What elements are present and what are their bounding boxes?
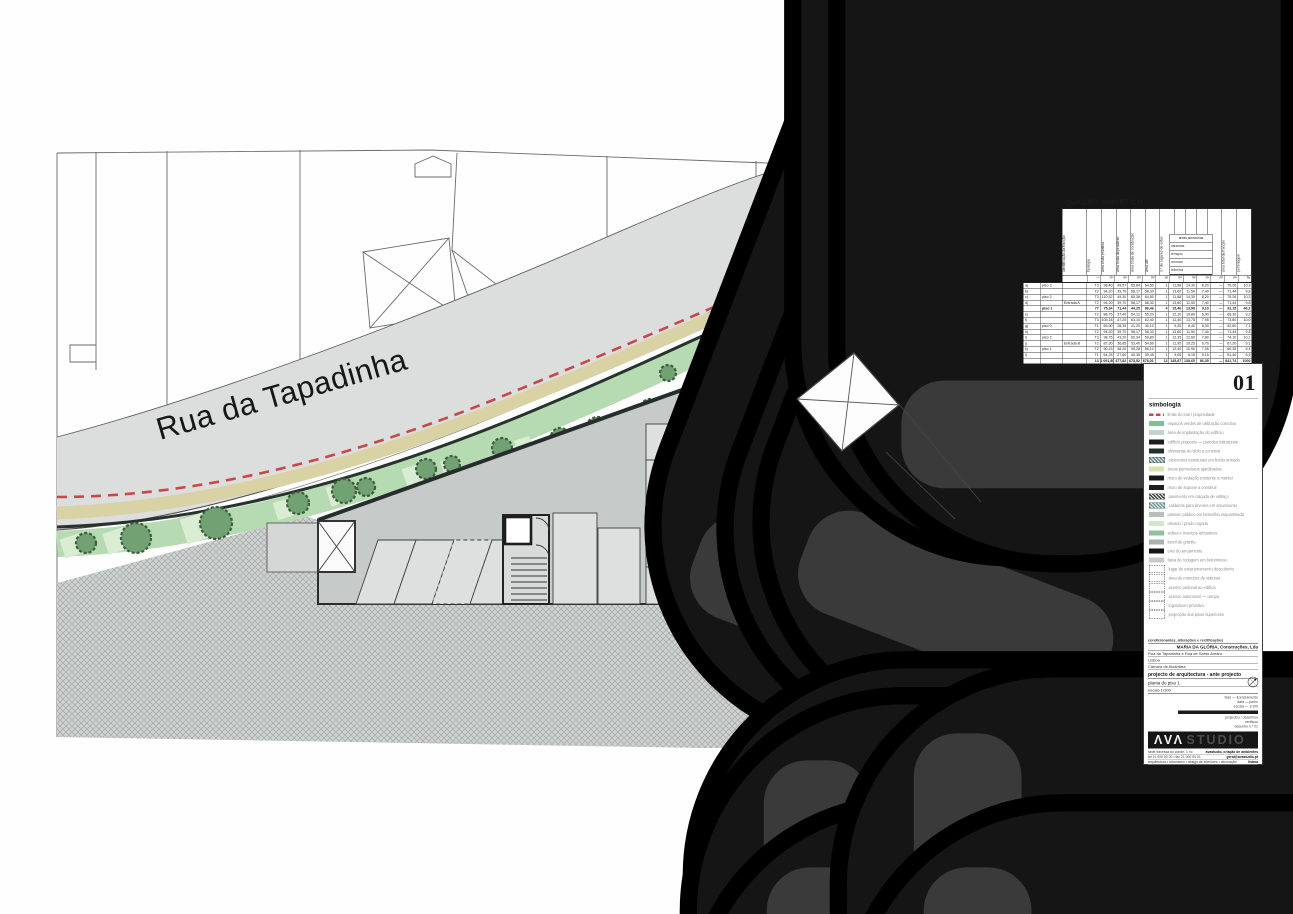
value-cell: 11,50 <box>1183 329 1197 334</box>
legend-item: sebes e maciços arbustivos <box>1149 528 1259 537</box>
fraction-cell: a) <box>1024 283 1041 288</box>
legend-title: simbologia <box>1149 401 1181 408</box>
synoptic-group-sub: arrumos <box>1170 259 1212 267</box>
value-cell: 1 <box>1155 312 1169 317</box>
synoptic-col-header: área bruta privativa <box>1102 209 1117 275</box>
value-cell: T2 <box>1087 329 1101 334</box>
synoptic-col-header: tipologia <box>1087 209 1102 275</box>
value-cell: 94,20 <box>1100 329 1114 334</box>
legend-swatch <box>1149 539 1164 544</box>
value-cell: 1 <box>1155 318 1169 323</box>
entrance-cell: Entrada A <box>1063 300 1087 305</box>
value-cell: 8,20 <box>1197 295 1211 300</box>
value-cell: 1 <box>1155 283 1169 288</box>
contact-text: geral@avastudio.pt <box>1227 756 1258 760</box>
legend-swatch <box>1149 521 1164 526</box>
value-cell: 13,98 <box>1183 306 1197 311</box>
legend-swatch <box>1149 502 1165 508</box>
floor-cell <box>1041 289 1063 294</box>
value-cell: 1 <box>1155 341 1169 346</box>
value-cell: 58,30 <box>1142 289 1156 294</box>
value-cell: 75,26 <box>1224 295 1238 300</box>
value-cell: 56,10 <box>1142 347 1156 352</box>
legend-item: lancil de granito <box>1149 537 1259 546</box>
floor-cell <box>1041 329 1063 334</box>
value-cell: — <box>1210 329 1224 334</box>
value-cell: 1 <box>1155 300 1169 305</box>
value-cell: 13,75 <box>1183 318 1197 323</box>
synoptic-units-row: —m²m²m²m²unm²m²m²m²m²‰ <box>1062 275 1252 283</box>
value-cell: 27,60 <box>1114 352 1128 357</box>
value-cell: 65,84 <box>1128 283 1142 288</box>
value-cell: 43,20 <box>1114 335 1128 340</box>
entrance-cell <box>1063 358 1087 363</box>
value-cell: 65,38 <box>1128 295 1142 300</box>
value-cell: 44,25 <box>1128 306 1142 311</box>
project-title: projecto de arquitectura - ante projecto <box>1148 670 1258 679</box>
floor-cell: piso 2 <box>1041 335 1063 340</box>
value-cell: — <box>1210 352 1224 357</box>
synoptic-group-sub: telheiros <box>1170 267 1212 275</box>
value-cell: 1 <box>1155 289 1169 294</box>
value-cell: 54,12 <box>1128 312 1142 317</box>
legend-label: faixa de rodagem em betuminoso <box>1168 558 1228 563</box>
floor-cell: piso 1 <box>1041 347 1063 352</box>
value-cell: 58,17 <box>1128 289 1142 294</box>
floor-cell: piso 3 <box>1041 283 1063 288</box>
value-cell: 58,30 <box>1142 300 1156 305</box>
legend-swatch <box>1149 602 1165 610</box>
legend-label: áreas permeáveis ajardinadas <box>1168 467 1222 472</box>
contact-text: avastudio, criação de ambientes <box>1206 751 1258 755</box>
floor-cell <box>1041 312 1063 317</box>
fraction-cell: b) <box>1024 289 1041 294</box>
value-cell: 67,20 <box>1224 341 1238 346</box>
value-cell: 88,75 <box>1100 312 1114 317</box>
value-cell: 8,40 <box>1183 324 1197 329</box>
value-cell: 71,44 <box>1224 289 1238 294</box>
legend-swatch <box>1149 565 1165 573</box>
legend-item: logradouro privativo <box>1149 601 1259 610</box>
value-cell: 41,20 <box>1128 324 1142 329</box>
value-cell: 10,80 <box>1183 312 1197 317</box>
value-cell: 39,70 <box>1114 329 1128 334</box>
fraction-cell: l) <box>1024 352 1041 357</box>
legend-swatch <box>1149 583 1165 591</box>
north-arrow-icon <box>1246 675 1260 689</box>
value-cell: 11,50 <box>1183 300 1197 305</box>
value-cell: 6,70 <box>1197 341 1211 346</box>
entrance-cell <box>1063 352 1087 357</box>
legend-item: relvado / prado regado <box>1149 519 1259 528</box>
fraction-cell: g) <box>1024 324 1041 329</box>
value-cell: 7,80 <box>1197 335 1211 340</box>
synoptic-unit: ‰ <box>1238 276 1251 283</box>
synoptic-col-header: área total da fracção <box>1222 209 1237 275</box>
fraction-cell: i) <box>1024 335 1041 340</box>
value-cell: 71,44 <box>1224 300 1238 305</box>
value-cell: 63,10 <box>1128 318 1142 323</box>
value-cell: 64,50 <box>1142 295 1156 300</box>
legend-swatch <box>1149 467 1164 472</box>
legend-swatch <box>1149 493 1165 499</box>
value-cell: 37,40 <box>1114 312 1128 317</box>
legend-swatch <box>1149 421 1164 426</box>
value-cell: 10,3 <box>1238 283 1252 288</box>
value-cell: 71,44 <box>1224 329 1238 334</box>
value-cell: 13,60 <box>1169 300 1183 305</box>
value-cell: 5,30 <box>1197 324 1211 329</box>
value-cell: 1 <box>1155 352 1169 357</box>
synoptic-unit: m² <box>1183 276 1197 283</box>
legend-label: caldeiras para árvores em arruamento <box>1169 503 1237 508</box>
floor-cell: piso 1 <box>1041 306 1063 311</box>
synoptic-col-header: área bruta dependente <box>1116 209 1131 275</box>
legend-item: área de manobra de viaturas <box>1149 574 1259 583</box>
synoptic-unit: m² <box>1211 276 1225 283</box>
value-cell: 1 <box>1155 347 1169 352</box>
legend-swatch <box>1149 448 1164 453</box>
fraction-cell: k) <box>1024 347 1041 352</box>
entrance-cell <box>1063 312 1087 317</box>
legend-swatch <box>1149 476 1164 481</box>
value-cell: 6,90 <box>1197 312 1211 317</box>
contact-text: lisboa <box>1248 761 1258 765</box>
fraction-cell: j) <box>1024 341 1041 346</box>
meta-line: escala — 1/100 <box>1148 705 1258 710</box>
legend-swatch <box>1149 574 1165 582</box>
synoptic-col-header: área útil <box>1146 209 1161 275</box>
legend-item: faixa de rodagem em betuminoso <box>1149 556 1259 565</box>
floor-cell <box>1041 341 1063 346</box>
floor-cell: piso 2 <box>1041 295 1063 300</box>
value-cell: 105,18 <box>1100 318 1114 323</box>
synoptic-col-header: identificação da fracção <box>1063 209 1088 275</box>
revision-bar <box>1178 711 1258 715</box>
value-cell: 86,46 <box>1142 306 1156 311</box>
floor-cell <box>1041 352 1063 357</box>
value-cell: 4 <box>1155 306 1169 311</box>
value-cell: 9,8 <box>1238 289 1252 294</box>
value-cell: — <box>1210 300 1224 305</box>
value-cell: 68,30 <box>1224 312 1238 317</box>
value-cell: T2 <box>1087 289 1101 294</box>
legend-item: acesso pedonal ao edifício <box>1149 583 1259 592</box>
value-cell: 71,44 <box>1114 306 1128 311</box>
legend-label: alvenarias de tijolo a construir <box>1168 448 1221 453</box>
value-cell: 9,1 <box>1238 341 1252 346</box>
entrance-cell <box>1063 335 1087 340</box>
legend-list: limite do lote / propriedadeespaços verd… <box>1149 410 1259 619</box>
legend-swatch <box>1149 457 1165 463</box>
value-cell: 75,26 <box>1224 283 1238 288</box>
legend-item: alvenarias de tijolo a construir <box>1149 446 1259 455</box>
legend-label: área de manobra de viaturas <box>1169 576 1221 581</box>
legend-swatch <box>1149 430 1164 435</box>
value-cell: — <box>1210 312 1224 317</box>
value-cell: T3 <box>1087 283 1101 288</box>
legend-label: lancil de granito <box>1168 539 1196 544</box>
value-cell: 1 091,80 <box>1100 358 1114 363</box>
legend-item: caldeiras para árvores em arruamento <box>1149 501 1259 510</box>
drawing-title: planta do piso 1 <box>1148 679 1258 687</box>
value-cell: 5,15 <box>1197 352 1211 357</box>
fraction-cell <box>1024 358 1041 363</box>
elevator-left <box>505 517 531 544</box>
entrance-cell <box>1063 306 1087 311</box>
ramp-box <box>318 521 355 572</box>
value-cell: 40,2 <box>1238 306 1252 311</box>
value-cell: 11,88 <box>1169 283 1183 288</box>
value-cell: 51,40 <box>1224 352 1238 357</box>
value-cell: 62,40 <box>1142 318 1156 323</box>
value-cell: 55,28 <box>1128 347 1142 352</box>
legend-titleblock-panel: 01 simbologia limite do lote / proprieda… <box>1143 363 1263 765</box>
value-cell: — <box>1210 347 1224 352</box>
legend-label: logradouro privativo <box>1169 603 1204 608</box>
value-cell: 13,60 <box>1169 289 1183 294</box>
synoptic-unit <box>1063 276 1089 283</box>
value-cell: 64,25 <box>1100 352 1114 357</box>
value-cell: 673,52 <box>1128 358 1142 363</box>
value-cell: 9,4 <box>1238 347 1252 352</box>
value-cell: 7,1 <box>1238 324 1252 329</box>
legend-label: muro de suporte a construir <box>1168 485 1217 490</box>
synoptic-group-sub: varandas <box>1170 243 1212 251</box>
legend-item: elementos estruturais em betão armado <box>1149 455 1259 464</box>
logo-ava: ΛVΛ <box>1154 733 1184 748</box>
legend-label: acesso automóvel — rampa <box>1169 594 1220 599</box>
legend-label: projecção dos pisos superiores <box>1169 612 1225 617</box>
legend-label: pavimento em calçada de vidraço <box>1169 494 1229 499</box>
value-cell: 1 <box>1155 329 1169 334</box>
value-cell: 1 <box>1155 324 1169 329</box>
value-cell: 12,10 <box>1169 312 1183 317</box>
value-cell: 11,40 <box>1169 318 1183 323</box>
value-cell: 87,30 <box>1100 341 1114 346</box>
legend-item: passeio público em betonilha esquartelad… <box>1149 510 1259 519</box>
entrance-cell <box>1063 283 1087 288</box>
synoptic-unit: m² <box>1142 276 1156 283</box>
value-cell: 49,30 <box>1114 295 1128 300</box>
value-cell: 477,82 <box>1114 358 1128 363</box>
synoptic-title: QUADRO SINÓPTICO <box>1065 198 1143 206</box>
value-cell: 12,35 <box>1169 335 1183 340</box>
legend-item: eixo do arruamento <box>1149 546 1259 555</box>
value-cell: 94,20 <box>1100 300 1114 305</box>
value-cell: 10,1 <box>1238 335 1252 340</box>
value-cell: 10,3 <box>1238 295 1252 300</box>
value-cell: 10,90 <box>1183 347 1197 352</box>
synoptic-col-header: área bruta de construção <box>1131 209 1146 275</box>
floor-cell <box>1041 318 1063 323</box>
fraction-cell: f) <box>1024 318 1041 323</box>
sheet-number: 01 <box>1233 370 1256 396</box>
legend-label: limite do lote / propriedade <box>1168 412 1215 417</box>
value-cell: 7,40 <box>1197 300 1211 305</box>
synoptic-unit: m² <box>1225 276 1239 283</box>
value-cell: T1 <box>1087 324 1101 329</box>
client-name: MARIA DA GLÓRIA, Construções, Lda <box>1148 644 1258 651</box>
legend-label: espaços verdes de utilização colectiva <box>1168 421 1236 426</box>
value-cell: 10,25 <box>1183 341 1197 346</box>
legend-item: área de implantação do edifício <box>1149 428 1259 437</box>
legend-item: áreas permeáveis ajardinadas <box>1149 465 1259 474</box>
value-cell: 74,10 <box>1224 335 1238 340</box>
entrance-cell <box>1063 329 1087 334</box>
synoptic-unit: m² <box>1101 276 1115 283</box>
value-cell: 11,50 <box>1183 289 1197 294</box>
value-cell: 90,15 <box>1100 347 1114 352</box>
floor-cell <box>1041 300 1063 305</box>
value-cell: 13,60 <box>1169 329 1183 334</box>
value-cell: 1 <box>1155 335 1169 340</box>
contact-text: tel 21 000 00 00 • fax 21 000 00 01 <box>1148 756 1201 760</box>
legend-swatch <box>1149 485 1164 490</box>
legend-item: edifício proposto — paredes estruturais <box>1149 437 1259 446</box>
value-cell: 47,25 <box>1114 318 1128 323</box>
value-cell: 69,35 <box>1224 347 1238 352</box>
entry-apron <box>267 523 318 572</box>
entrance-cell: Entrada B <box>1063 341 1087 346</box>
value-cell: 6,9 <box>1238 352 1252 357</box>
synoptic-group-header: áreas acessórias varandasterraçosarrumos… <box>1170 234 1213 275</box>
value-cell: — <box>1210 335 1224 340</box>
value-cell: 64,50 <box>1142 283 1156 288</box>
synoptic-unit: m² <box>1197 276 1211 283</box>
contact-block: sede travessa do conde, 1 r/cavastudio, … <box>1148 750 1258 765</box>
value-cell: T3 <box>1087 295 1101 300</box>
value-cell: 98,40 <box>1100 283 1114 288</box>
value-cell: 58,17 <box>1128 300 1142 305</box>
value-cell: 7,40 <box>1197 329 1211 334</box>
synoptic-body: a)piso 3T398,4049,5765,8464,50111,8814,3… <box>1023 283 1252 365</box>
value-cell: 58,30 <box>1142 329 1156 334</box>
value-cell: 73,80 <box>1224 318 1238 323</box>
synoptic-group-sub: terraços <box>1170 251 1212 259</box>
value-cell: 92,15 <box>1224 306 1238 311</box>
value-cell: 98,75 <box>1100 335 1114 340</box>
fraction-cell <box>1024 306 1041 311</box>
value-cell: 12,60 <box>1183 335 1197 340</box>
value-cell: 40,35 <box>1128 352 1142 357</box>
synoptic-unit: — <box>1088 276 1101 283</box>
value-cell: 14,30 <box>1183 283 1197 288</box>
drawing-sheet: Rua da Tapadinha <box>0 0 1293 914</box>
value-cell: 13 <box>1087 358 1101 363</box>
value-cell: 12,40 <box>1169 347 1183 352</box>
legend-swatch <box>1149 413 1164 416</box>
value-cell: 15,46 <box>1169 306 1183 311</box>
value-cell: 8,15 <box>1183 352 1197 357</box>
legend-item: espaços verdes de utilização colectiva <box>1149 419 1259 428</box>
legend-item: limite do lote / propriedade <box>1149 410 1259 419</box>
legend-item: pavimento em calçada de vidraço <box>1149 492 1259 501</box>
value-cell: T2 <box>1087 312 1101 317</box>
value-cell: 36,85 <box>1114 341 1128 346</box>
value-cell: 110,52 <box>1100 295 1114 300</box>
contact-text: arquitectura • urbanismo • design de int… <box>1148 761 1237 765</box>
value-cell: 40,10 <box>1142 324 1156 329</box>
value-cell: — <box>1210 283 1224 288</box>
meta-block-1: fase — licenciamentodata — junhoescala —… <box>1148 696 1258 710</box>
value-cell: — <box>1210 295 1224 300</box>
synoptic-unit: un <box>1156 276 1170 283</box>
value-cell: T2 <box>1087 347 1101 352</box>
fraction-cell: d) <box>1024 300 1041 305</box>
value-cell: 9,25 <box>1169 324 1183 329</box>
value-cell: 49,57 <box>1114 283 1128 288</box>
value-cell: 58,17 <box>1128 329 1142 334</box>
value-cell: T1 <box>1087 352 1101 357</box>
legend-label: acesso pedonal ao edifício <box>1169 585 1217 590</box>
synoptic-header: identificação da fracçãotipologiaárea br… <box>1062 209 1252 275</box>
value-cell: — <box>1210 306 1224 311</box>
entrance-cell <box>1063 324 1087 329</box>
value-cell: 1 <box>1155 295 1169 300</box>
value-cell: 75,34 <box>1100 306 1114 311</box>
legend-item: lugar de estacionamento descoberto <box>1149 565 1259 574</box>
value-cell: 54,60 <box>1142 341 1156 346</box>
value-cell: 39,70 <box>1114 300 1128 305</box>
synoptic-col-header: permilagem <box>1237 209 1252 275</box>
value-cell: 7,40 <box>1197 289 1211 294</box>
stair-core-left <box>503 515 549 604</box>
legend-label: lugar de estacionamento descoberto <box>1169 567 1234 572</box>
legend-swatch <box>1149 512 1164 517</box>
entrance-cell <box>1063 289 1087 294</box>
value-cell: 39,70 <box>1114 289 1128 294</box>
value-cell: — <box>1210 341 1224 346</box>
legend-swatch <box>1149 611 1165 619</box>
value-cell: 11,95 <box>1169 341 1183 346</box>
legend-label: elementos estruturais em betão armado <box>1169 458 1240 463</box>
legend-label: área de implantação do edifício <box>1168 430 1224 435</box>
floor-cell <box>1041 358 1063 363</box>
synoptic-unit: m² <box>1115 276 1129 283</box>
legend-item: muro de vedação existente a manter <box>1149 474 1259 483</box>
legend-label: muro de vedação existente a manter <box>1168 476 1234 481</box>
synoptic-unit: m² <box>1170 276 1184 283</box>
value-cell: 38,20 <box>1114 347 1128 352</box>
legend-item: projecção dos pisos superiores <box>1149 610 1259 619</box>
entrance-cell <box>1063 347 1087 352</box>
legend-label: edifício proposto — paredes estruturais <box>1168 439 1238 444</box>
value-cell: 9,8 <box>1238 329 1252 334</box>
value-cell: 14,30 <box>1183 295 1197 300</box>
synoptic-table: QUADRO SINÓPTICO identificação da fracçã… <box>1022 197 1253 365</box>
contact-text: sede travessa do conde, 1 r/c <box>1148 751 1193 755</box>
value-cell: 59,80 <box>1142 335 1156 340</box>
value-cell: 55,20 <box>1142 312 1156 317</box>
value-cell: T2 <box>1087 341 1101 346</box>
legend-swatch <box>1149 439 1164 444</box>
fraction-cell: e) <box>1024 312 1041 317</box>
legend-label: sebes e maciços arbustivos <box>1168 530 1218 535</box>
synoptic-unit: m² <box>1129 276 1143 283</box>
value-cell: 9,2 <box>1238 312 1252 317</box>
value-cell: 10,0 <box>1238 318 1252 323</box>
value-cell: T2 <box>1087 300 1101 305</box>
value-cell: — <box>1210 289 1224 294</box>
meta-line: desenho n.º 01 <box>1148 725 1258 730</box>
value-cell: T3 <box>1087 335 1101 340</box>
value-cell: 11,88 <box>1169 295 1183 300</box>
value-cell: 39,45 <box>1142 352 1156 357</box>
value-cell: 53,40 <box>1128 341 1142 346</box>
legend-label: eixo do arruamento <box>1168 548 1203 553</box>
value-cell: 60,34 <box>1128 335 1142 340</box>
